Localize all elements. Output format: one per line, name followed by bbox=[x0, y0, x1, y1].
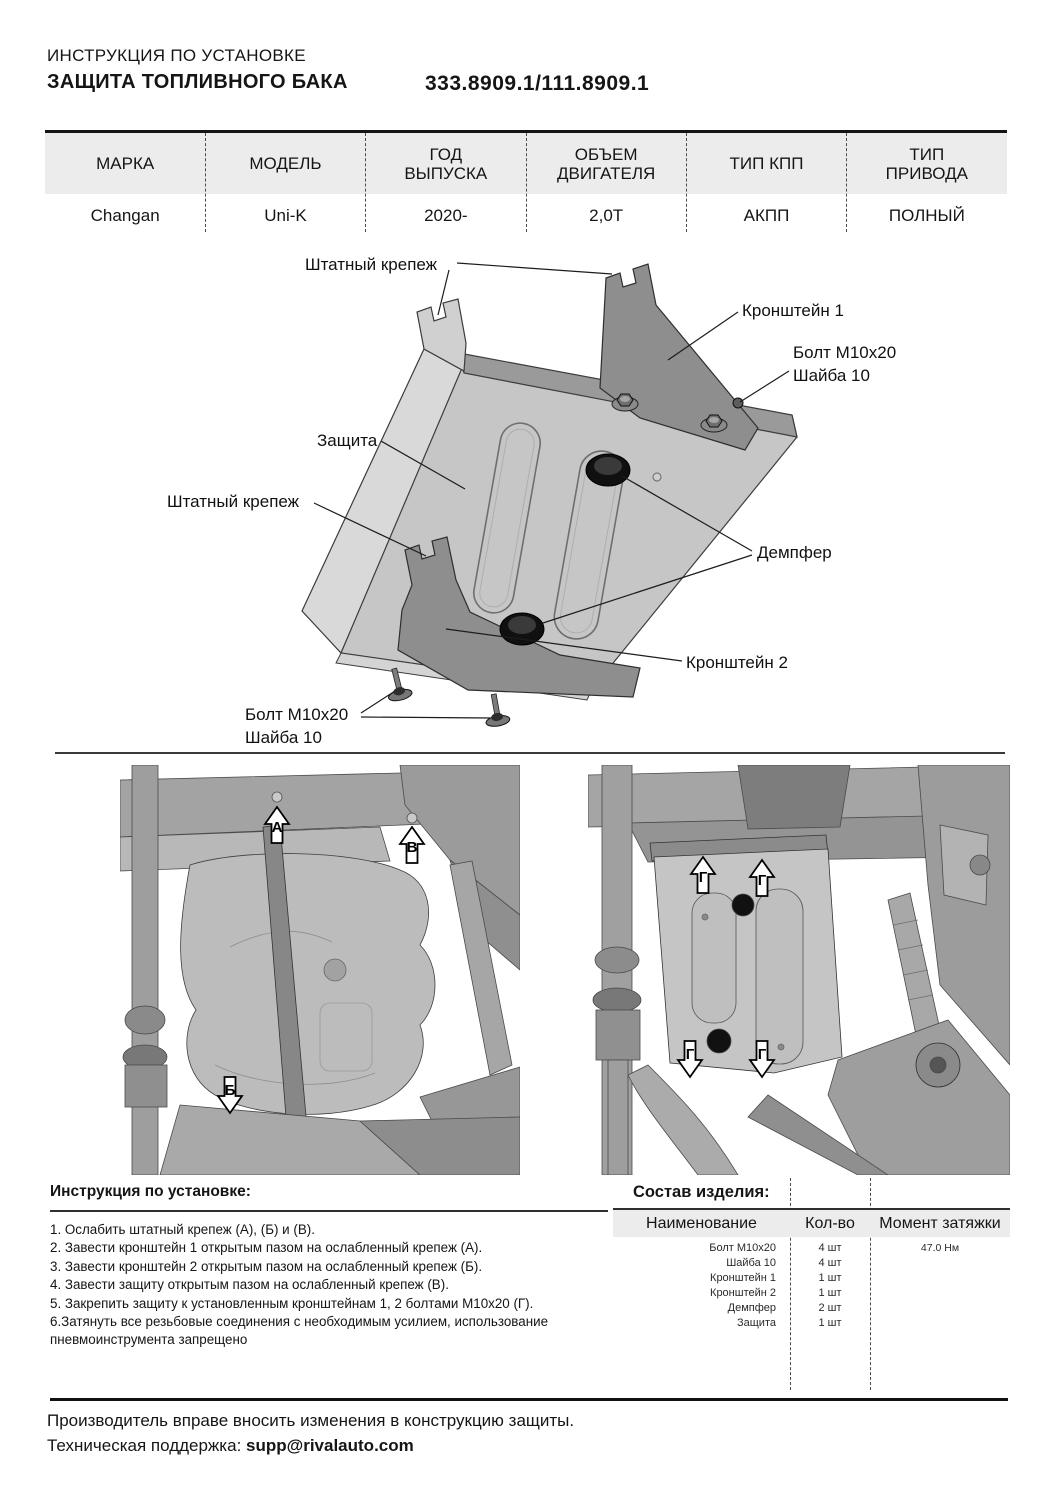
page-title: ЗАЩИТА ТОПЛИВНОГО БАКА bbox=[47, 71, 348, 94]
label-factory-mount-left: Штатный крепеж bbox=[167, 492, 300, 511]
spec-col-brand: МАРКА bbox=[45, 133, 205, 194]
svg-text:В: В bbox=[407, 839, 418, 856]
doc-type-line: ИНСТРУКЦИЯ ПО УСТАНОВКЕ bbox=[47, 46, 348, 66]
parts-row: Кронштейн 1 1 шт bbox=[613, 1270, 1010, 1285]
spec-col-model: МОДЕЛЬ bbox=[205, 133, 365, 194]
spec-divider bbox=[846, 133, 847, 232]
spec-divider bbox=[205, 133, 206, 232]
support-email[interactable]: supp@rivalauto.com bbox=[246, 1436, 414, 1455]
instructions-title: Инструкция по установке: bbox=[50, 1183, 608, 1201]
instruction-step: 2. Завести кронштейн 1 открытым пазом на… bbox=[50, 1239, 608, 1257]
label-washer-bottom: Шайба 10 bbox=[245, 728, 322, 747]
installation-instructions: Инструкция по установке: 1. Ослабить шта… bbox=[50, 1183, 608, 1350]
part-number: 333.8909.1/111.8909.1 bbox=[425, 72, 649, 96]
instruction-step: 5. Закрепить защиту к установленным крон… bbox=[50, 1295, 608, 1313]
parts-row: Демпфер 2 шт bbox=[613, 1300, 1010, 1315]
section-divider bbox=[55, 752, 1005, 754]
parts-col-torque: Момент затяжки bbox=[870, 1215, 1010, 1233]
parts-row: Кронштейн 2 1 шт bbox=[613, 1285, 1010, 1300]
parts-row: Болт М10х20 4 шт 47.0 Нм bbox=[613, 1240, 1010, 1255]
loose-bolt-right bbox=[481, 692, 510, 728]
spec-col-year: ГОД ВЫПУСКА bbox=[366, 133, 526, 194]
instruction-step: 3. Завести кронштейн 2 открытым пазом на… bbox=[50, 1258, 608, 1276]
svg-text:А: А bbox=[272, 819, 283, 836]
support-label: Техническая поддержка: bbox=[47, 1436, 246, 1455]
shield-hole bbox=[653, 473, 661, 481]
footer: Производитель вправе вносить изменения в… bbox=[47, 1408, 574, 1458]
photo-installed-shield: Г Г Г Г bbox=[588, 765, 1010, 1175]
svg-text:Г: Г bbox=[758, 1046, 767, 1063]
label-factory-mount-top: Штатный крепеж bbox=[305, 255, 438, 274]
instruction-step: 4. Завести защиту открытым пазом на осла… bbox=[50, 1276, 608, 1294]
assembly-diagram: Штатный крепеж Кронштейн 1 Болт М10х20 Ш… bbox=[0, 228, 1061, 763]
label-shield: Защита bbox=[317, 431, 378, 450]
spec-divider bbox=[526, 133, 527, 232]
instruction-step: 6.Затянуть все резьбовые соединения с не… bbox=[50, 1313, 608, 1350]
instruction-step: 1. Ослабить штатный крепеж (А), (Б) и (В… bbox=[50, 1221, 608, 1239]
label-damper: Демпфер bbox=[757, 543, 832, 562]
svg-text:Г: Г bbox=[758, 872, 767, 889]
damper-top bbox=[586, 454, 630, 486]
parts-col-name: Наименование bbox=[613, 1215, 790, 1233]
svg-text:Г: Г bbox=[686, 1046, 695, 1063]
spec-col-gearbox: ТИП КПП bbox=[686, 133, 846, 194]
parts-col-qty: Кол-во bbox=[790, 1215, 870, 1233]
spec-divider bbox=[686, 133, 687, 232]
label-bracket-1: Кронштейн 1 bbox=[742, 301, 844, 320]
spec-col-engine: ОБЪЕМ ДВИГАТЕЛЯ bbox=[526, 133, 686, 194]
footer-rule bbox=[50, 1398, 1008, 1401]
footer-note: Производитель вправе вносить изменения в… bbox=[47, 1408, 574, 1433]
spec-col-drive: ТИП ПРИВОДА bbox=[847, 133, 1007, 194]
photo-fuel-tank-area: А В Б bbox=[120, 765, 520, 1175]
spec-divider bbox=[365, 133, 366, 232]
label-bolt-bottom: Болт М10х20 bbox=[245, 705, 348, 724]
document-header: ИНСТРУКЦИЯ ПО УСТАНОВКЕ ЗАЩИТА ТОПЛИВНОГ… bbox=[47, 46, 348, 94]
parts-list-table: Состав изделия: Наименование Кол-во Моме… bbox=[613, 1178, 1010, 1390]
label-bolt-top: Болт М10х20 bbox=[793, 343, 896, 362]
label-washer-top: Шайба 10 bbox=[793, 366, 870, 385]
parts-title: Состав изделия: bbox=[633, 1183, 770, 1202]
parts-row: Защита 1 шт bbox=[613, 1315, 1010, 1330]
damper-bottom bbox=[500, 613, 544, 645]
label-bracket-2: Кронштейн 2 bbox=[686, 653, 788, 672]
parts-row: Шайба 10 4 шт bbox=[613, 1255, 1010, 1270]
instructions-rule bbox=[50, 1210, 608, 1212]
svg-text:Г: Г bbox=[699, 869, 708, 886]
marker-arrow-v: В bbox=[400, 827, 424, 863]
parts-header-row: Наименование Кол-во Момент затяжки bbox=[613, 1210, 1010, 1237]
svg-text:Б: Б bbox=[225, 1082, 236, 1099]
torque-value: 47.0 Нм bbox=[870, 1242, 1010, 1254]
bolt-tip bbox=[733, 398, 743, 408]
